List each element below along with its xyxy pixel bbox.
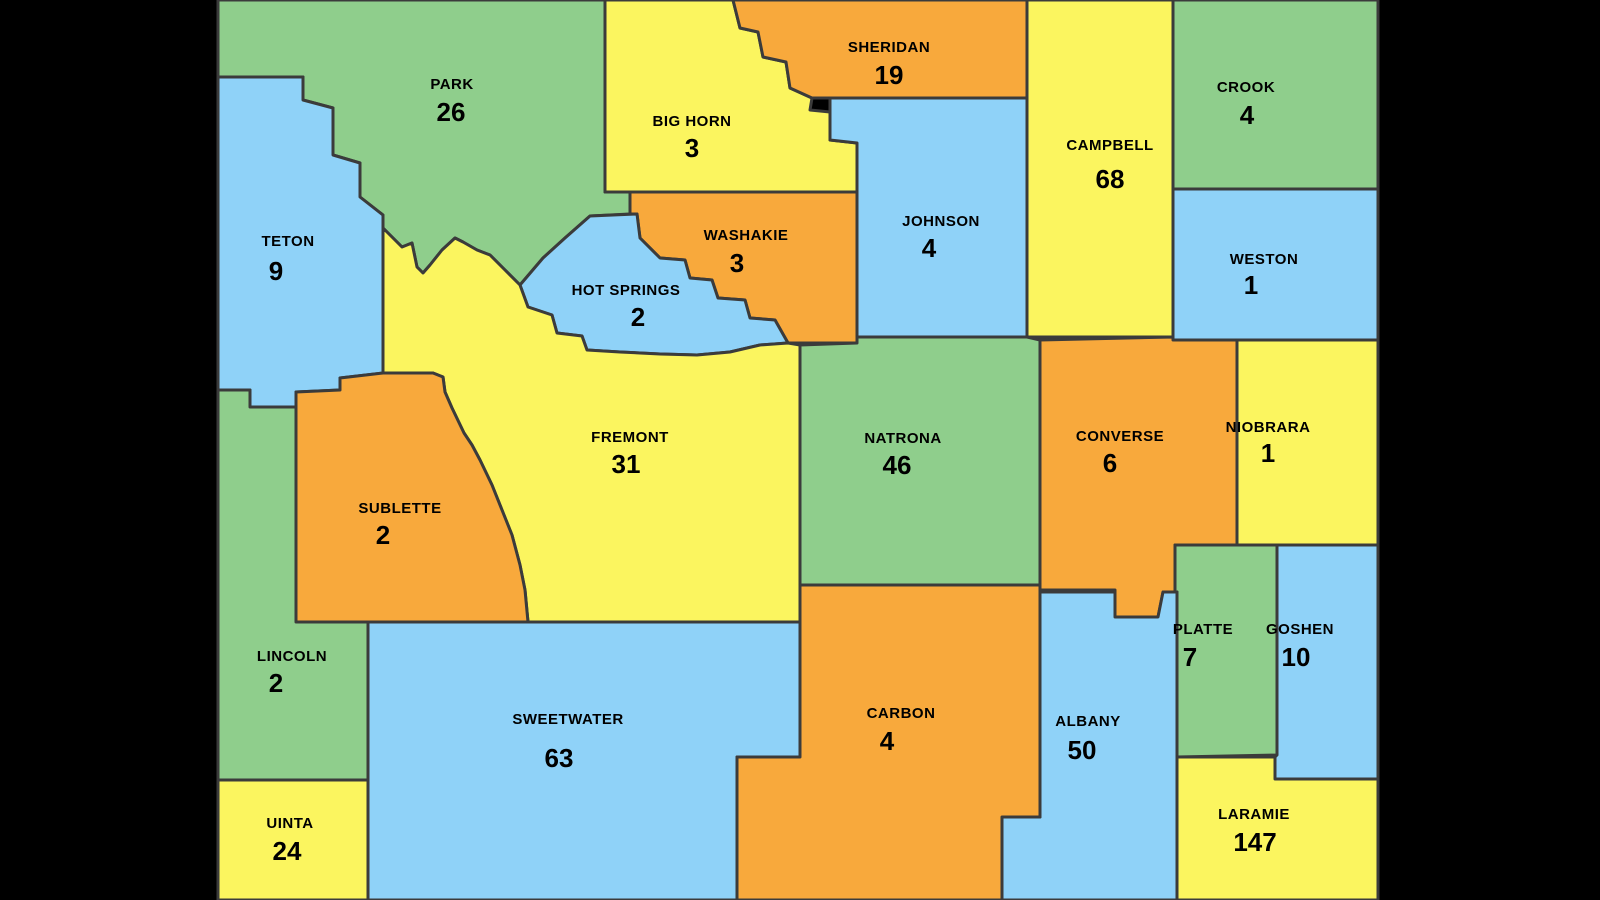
wyoming-county-map: PARK 26 BIG HORN 3 SHERIDAN 19 CAMPBELL … xyxy=(0,0,1600,900)
county-name: WESTON xyxy=(1230,251,1299,268)
county-name: CARBON xyxy=(867,705,936,722)
county-value: 46 xyxy=(883,450,912,480)
county-name: BIG HORN xyxy=(653,113,732,130)
county-value: 2 xyxy=(376,520,390,550)
county-value: 7 xyxy=(1183,642,1197,672)
county-value: 9 xyxy=(269,256,283,286)
county-value: 1 xyxy=(1261,438,1275,468)
county-name: LARAMIE xyxy=(1218,806,1290,823)
county-value: 63 xyxy=(545,743,574,773)
county-name: LINCOLN xyxy=(257,648,327,665)
county-name: SUBLETTE xyxy=(358,500,441,517)
county-name: NATRONA xyxy=(864,430,941,447)
county-value: 4 xyxy=(880,726,895,756)
county-value: 2 xyxy=(269,668,283,698)
county-shape-laramie xyxy=(1177,757,1378,900)
county-name: FREMONT xyxy=(591,429,669,446)
county-value: 3 xyxy=(730,248,744,278)
county-name: SWEETWATER xyxy=(512,711,623,728)
county-name: HOT SPRINGS xyxy=(572,282,681,299)
county-shape-sweetwater xyxy=(368,622,800,900)
county-value: 4 xyxy=(1240,100,1255,130)
county-shape-crook xyxy=(1173,0,1378,189)
county-value: 24 xyxy=(273,836,302,866)
county-value: 10 xyxy=(1282,642,1311,672)
county-name: JOHNSON xyxy=(902,213,980,230)
county-value: 19 xyxy=(875,60,904,90)
county-name: NIOBRARA xyxy=(1226,419,1311,436)
county-name: PLATTE xyxy=(1173,621,1233,638)
county-value: 4 xyxy=(922,233,937,263)
county-value: 1 xyxy=(1244,270,1258,300)
county-value: 2 xyxy=(631,302,645,332)
county-shape-niobrara xyxy=(1237,340,1378,545)
county-name: GOSHEN xyxy=(1266,621,1334,638)
county-name: TETON xyxy=(261,233,314,250)
county-value: 68 xyxy=(1096,164,1125,194)
county-value: 26 xyxy=(437,97,466,127)
county-name: UINTA xyxy=(266,815,313,832)
county-value: 147 xyxy=(1233,827,1276,857)
county-name: WASHAKIE xyxy=(704,227,789,244)
county-name: CONVERSE xyxy=(1076,428,1164,445)
county-value: 6 xyxy=(1103,448,1117,478)
county-value: 3 xyxy=(685,133,699,163)
county-name: SHERIDAN xyxy=(848,39,930,56)
map-canvas: PARK 26 BIG HORN 3 SHERIDAN 19 CAMPBELL … xyxy=(0,0,1600,900)
county-name: CROOK xyxy=(1217,79,1275,96)
county-name: ALBANY xyxy=(1055,713,1121,730)
county-name: CAMPBELL xyxy=(1066,137,1153,154)
county-value: 50 xyxy=(1068,735,1097,765)
county-name: PARK xyxy=(430,76,473,93)
county-value: 31 xyxy=(612,449,641,479)
county-shape-natrona xyxy=(800,337,1040,585)
